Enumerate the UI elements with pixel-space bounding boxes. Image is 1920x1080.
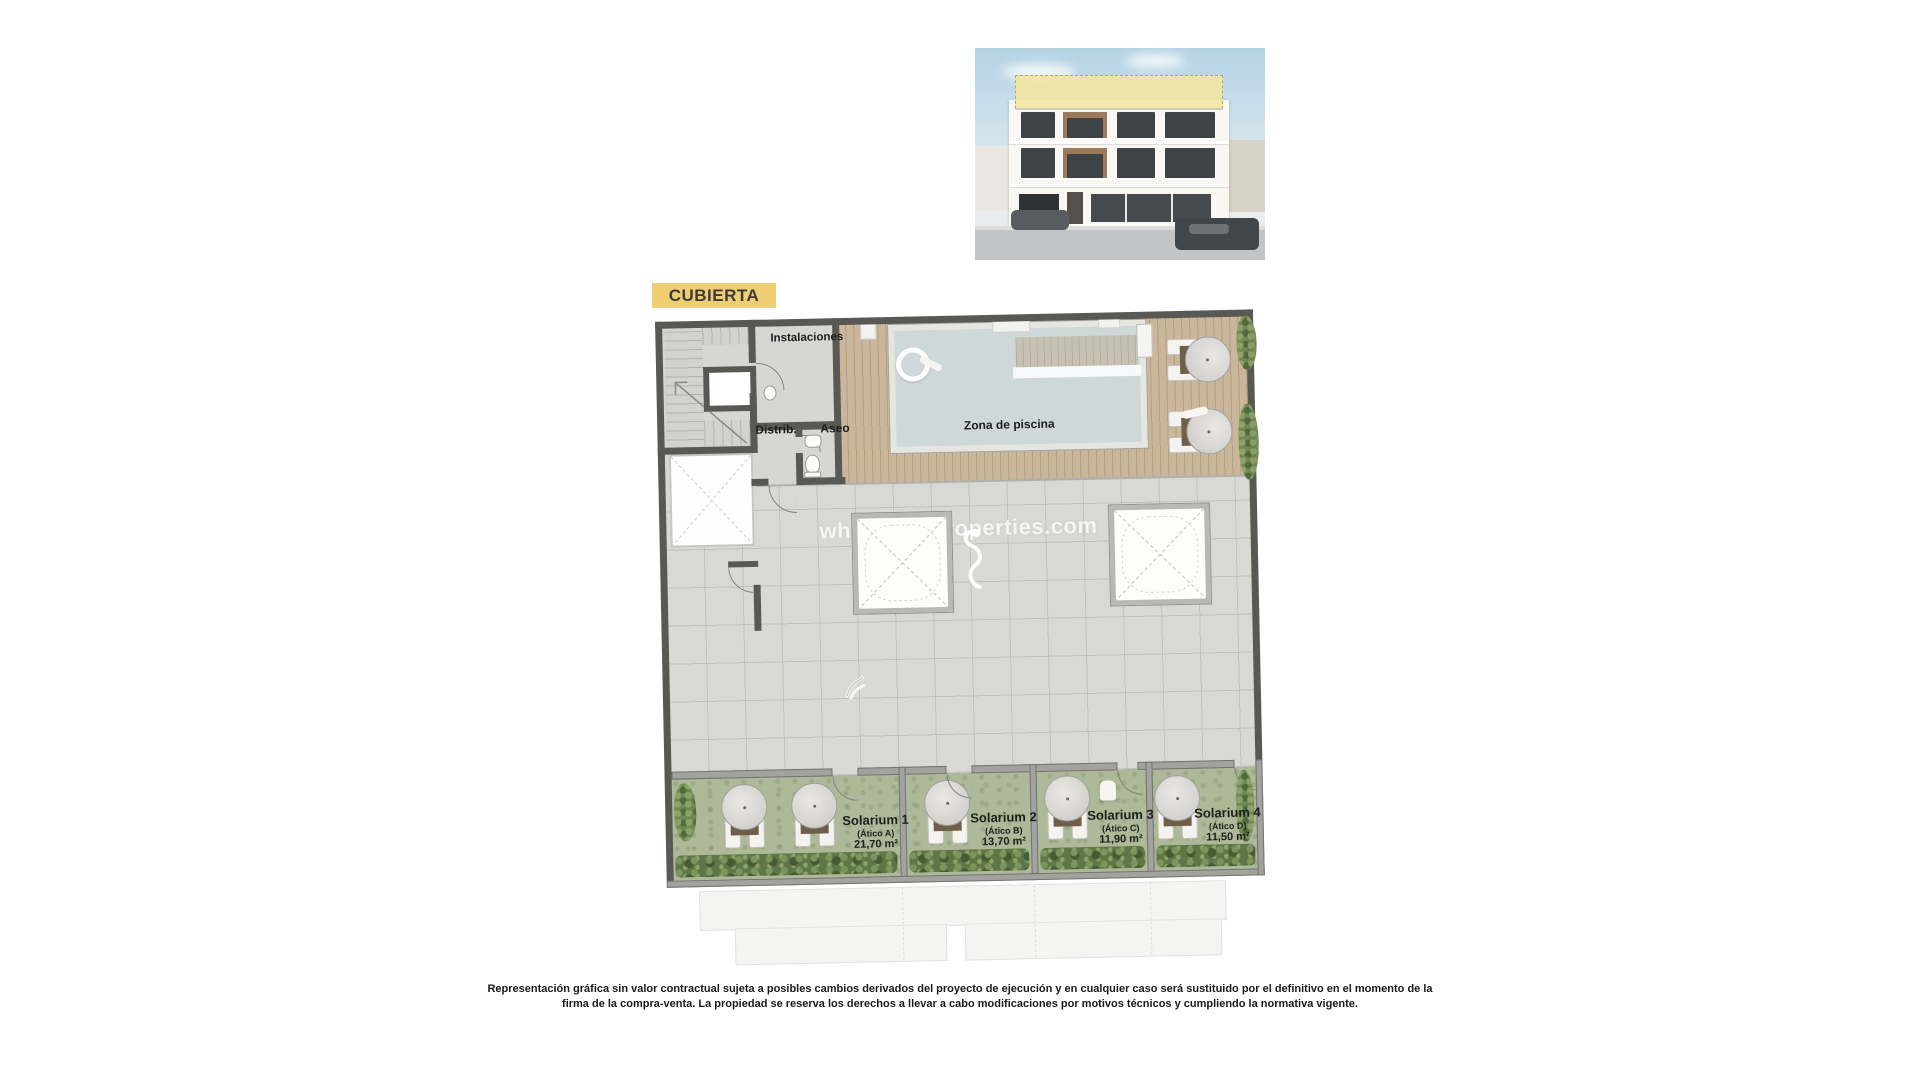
watermark-seahorse-icon <box>954 525 989 594</box>
disclaimer-line-1: Representación gráfica sin valor contrac… <box>0 982 1920 997</box>
room-instalaciones-label: Instalaciones <box>770 331 843 345</box>
window <box>1165 112 1215 138</box>
neighbor-building-right <box>1227 140 1265 212</box>
room-aseo-label: Aseo <box>820 421 850 436</box>
cubierta-badge: CUBIERTA <box>652 283 776 308</box>
wall <box>751 479 768 486</box>
car-right <box>1175 218 1259 250</box>
solarium-area: 13,70 m² <box>964 835 1044 849</box>
disclaimer: Representación gráfica sin valor contrac… <box>0 982 1920 1012</box>
hedge <box>1040 846 1145 870</box>
solarium-area: 11,90 m² <box>1081 832 1161 846</box>
wall <box>748 320 756 363</box>
cubierta-badge-label: CUBIERTA <box>669 286 760 306</box>
floor-slab <box>1009 184 1229 187</box>
solarium-name: Solarium 3 <box>1080 807 1160 823</box>
solarium-name: Solarium 1 <box>835 813 915 829</box>
window <box>1021 148 1055 178</box>
car-left <box>1011 210 1069 230</box>
ghost-floor-outline <box>735 924 948 965</box>
plant-cluster <box>1238 403 1260 479</box>
cloud <box>1125 54 1185 68</box>
window <box>1117 148 1155 178</box>
window <box>1067 154 1103 178</box>
page-canvas: CUBIERTA <box>0 0 1920 1080</box>
solarium-label: Solarium 2 (Ático B) 13,70 m² <box>963 810 1044 849</box>
roof-railing <box>1015 108 1223 110</box>
lounger-set <box>721 784 768 855</box>
mullion <box>1125 194 1127 222</box>
window <box>1117 112 1155 138</box>
roof-highlight-band <box>1015 75 1223 109</box>
balcony-rail <box>1021 138 1215 140</box>
window <box>1067 118 1103 138</box>
pool-bench <box>1015 335 1138 368</box>
balcony-rail <box>1021 178 1215 180</box>
skylight <box>852 512 953 614</box>
pool-ladder-icon <box>1136 324 1153 358</box>
room-distrib-label: Distrib. <box>755 422 797 437</box>
bird-icon <box>842 674 867 702</box>
person-figure <box>1100 780 1116 800</box>
sink-icon <box>804 434 821 447</box>
solarium-label: Solarium 4 (Ático D) 11,50 m² <box>1187 805 1268 844</box>
neighbor-building-left <box>975 146 1011 210</box>
pool-zone-label: Zona de piscina <box>954 416 1064 432</box>
plant-cluster <box>1236 315 1257 369</box>
entrance-door <box>1067 192 1083 224</box>
wall <box>754 585 762 631</box>
hedge <box>675 851 897 878</box>
mullion <box>1171 194 1173 222</box>
wall <box>798 477 845 485</box>
skylight <box>1109 503 1211 605</box>
stair-treads <box>702 326 748 345</box>
floor-slab <box>1009 141 1229 144</box>
hedge <box>909 848 1029 873</box>
hedge <box>1156 843 1255 867</box>
lounger-set <box>1160 336 1231 383</box>
building-render <box>975 48 1265 260</box>
solarium-name: Solarium 2 <box>963 810 1043 826</box>
car-windshield <box>1189 224 1229 234</box>
solarium-name: Solarium 4 <box>1187 805 1267 821</box>
window <box>1165 148 1215 178</box>
lounger-set <box>791 782 838 853</box>
solarium-area: 21,70 m² <box>836 837 916 851</box>
solarium-label: Solarium 1 (Ático A) 21,70 m² <box>835 813 916 852</box>
solarium-label: Solarium 3 (Ático C) 11,90 m² <box>1080 807 1161 846</box>
ghost-floor-outline <box>965 918 1223 960</box>
floor-plan: Instalaciones Distrib. Aseo Zona de pisc… <box>652 307 1280 980</box>
toilet-tank <box>804 471 821 477</box>
disclaimer-line-2: firma de la compra-venta. La propiedad s… <box>0 997 1920 1012</box>
window <box>1021 112 1055 138</box>
skylight <box>669 453 755 548</box>
solarium-area: 11,50 m² <box>1188 830 1268 844</box>
umbrella-icon <box>1184 336 1231 383</box>
